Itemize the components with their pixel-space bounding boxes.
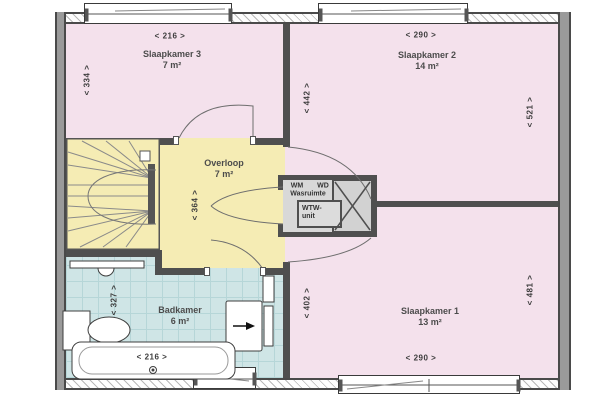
door-arc-wasruimte-bottom [211, 206, 283, 224]
dim-overloop-height: < 364 > [191, 190, 200, 221]
room-name: Slaapkamer 2 [398, 50, 456, 61]
dim-slaapkamer1-height-right: < 481 > [526, 275, 535, 306]
dim-slaapkamer3-height: < 334 > [83, 65, 92, 96]
door-arc-wasruimte-top [211, 187, 283, 206]
dim-slaapkamer1-width: < 290 > [406, 354, 437, 363]
room-area: 7 m² [204, 169, 244, 180]
room-area: 6 m² [158, 316, 202, 327]
room-area: 13 m² [401, 317, 459, 328]
room-name: Overloop [204, 158, 244, 169]
dim-slaapkamer3-width: < 216 > [155, 32, 186, 41]
shaft-cross-icon [335, 182, 370, 230]
door-arc-slaapkamer-3 [179, 105, 253, 138]
label-wd: WD [317, 183, 329, 190]
door-frame [250, 136, 256, 145]
toilet-bowl [88, 317, 130, 343]
room-name: Slaapkamer 3 [143, 49, 201, 60]
room-area: 7 m² [143, 60, 201, 71]
plan-linework [0, 0, 600, 400]
door-arc-slaapkamer-1 [288, 238, 371, 262]
door-frame [204, 267, 210, 276]
label-badkamer: Badkamer 6 m² [158, 305, 202, 327]
dim-badkamer-height: < 327 > [110, 285, 119, 316]
radiator [263, 276, 274, 302]
label-wm: WM [291, 183, 303, 190]
dim-slaapkamer1-height-left: < 402 > [303, 288, 312, 319]
label-overloop: Overloop 7 m² [204, 158, 244, 180]
door-frame [173, 136, 179, 145]
label-wtw-unit: WTW- unit [302, 205, 322, 221]
room-name: Badkamer [158, 305, 202, 316]
shower-channel [70, 261, 144, 268]
washbasin-side [264, 306, 273, 346]
label-slaapkamer-3: Slaapkamer 3 7 m² [143, 49, 201, 71]
door-frame [260, 267, 266, 276]
label-wasruimte: Wasruimte [290, 191, 326, 198]
dim-badkamer-width: < 216 > [137, 353, 168, 362]
door-arc-badkamer [211, 240, 263, 269]
room-name: Slaapkamer 1 [401, 306, 459, 317]
shower-drain [98, 268, 114, 276]
room-area: 14 m² [398, 61, 456, 72]
dim-slaapkamer2-width: < 290 > [406, 31, 437, 40]
dim-slaapkamer2-height-right: < 521 > [526, 97, 535, 128]
dim-slaapkamer2-height-left: < 442 > [303, 83, 312, 114]
floorplan: Slaapkamer 3 7 m² Slaapkamer 2 14 m² Sla… [0, 0, 600, 400]
label-slaapkamer-1: Slaapkamer 1 13 m² [401, 306, 459, 328]
label-slaapkamer-2: Slaapkamer 2 14 m² [398, 50, 456, 72]
